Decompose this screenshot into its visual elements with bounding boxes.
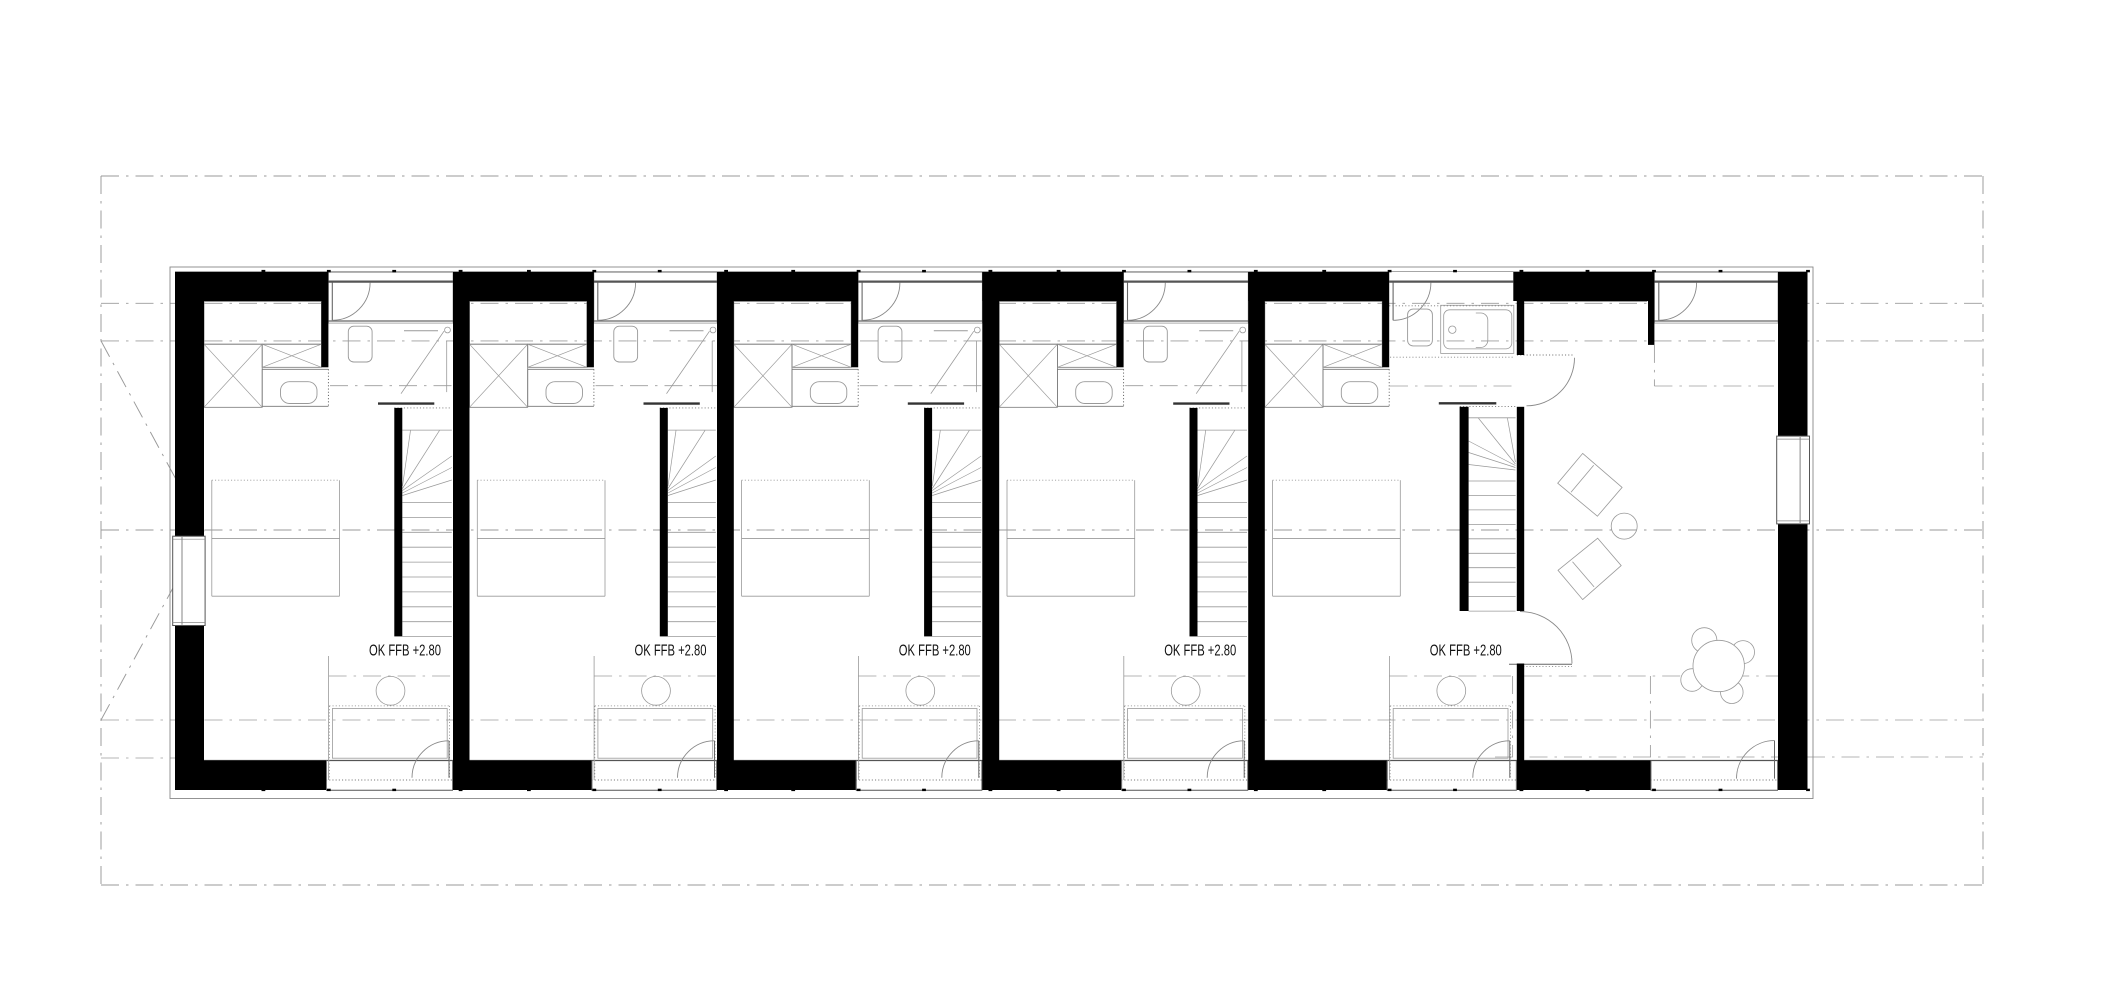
svg-text:OK FFB +2.80: OK FFB +2.80 — [1164, 642, 1236, 659]
svg-text:OK FFB +2.80: OK FFB +2.80 — [1430, 642, 1502, 659]
svg-text:OK FFB +2.80: OK FFB +2.80 — [635, 642, 707, 659]
svg-text:OK FFB +2.80: OK FFB +2.80 — [369, 642, 441, 659]
svg-text:OK FFB +2.80: OK FFB +2.80 — [899, 642, 971, 659]
